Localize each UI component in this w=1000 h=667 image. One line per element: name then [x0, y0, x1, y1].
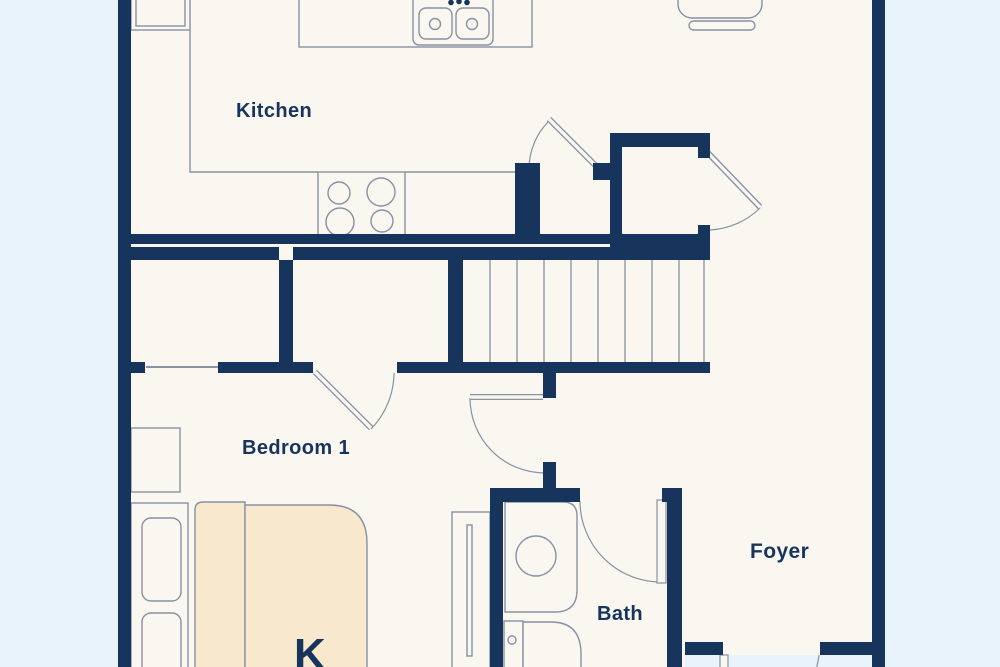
toilet-icon	[504, 621, 581, 667]
wall-door-jamb	[593, 163, 610, 180]
wardrobe-mirror-panel-icon	[452, 512, 490, 667]
wall-right-exterior	[872, 0, 885, 667]
armchair-icon	[678, 0, 762, 30]
wall-closet-jamb-bottom	[698, 225, 710, 260]
wall-closet-left	[610, 133, 622, 250]
bedroom1-label: Bedroom 1	[242, 437, 350, 460]
foyer-label: Foyer	[750, 540, 809, 564]
floor-plan-drawing	[0, 0, 1000, 667]
wall-left-exterior	[118, 0, 131, 667]
wall-closet-bottom	[610, 237, 710, 250]
double-basin-sink-icon	[413, 0, 493, 45]
wall-bedroom-top-a	[118, 362, 145, 373]
wall-bath-right	[667, 502, 682, 667]
wall-closet-jamb-top	[698, 147, 710, 158]
wall-foyer-bottom-right	[820, 642, 872, 655]
wall-rooms-top-left	[118, 247, 279, 260]
vanity-with-round-sink-icon	[505, 502, 577, 612]
wall-closet-divider	[279, 260, 293, 362]
bath-fixtures	[504, 502, 581, 667]
wall-kitchen-right	[515, 163, 540, 234]
wall-foyer-bottom-left	[685, 642, 723, 655]
wall-bath-left	[490, 502, 503, 667]
wall-stairwell-left	[448, 260, 463, 362]
bath-label: Bath	[597, 603, 643, 626]
wall-bath-top	[490, 488, 580, 502]
stove-four-burner-icon	[318, 172, 405, 238]
dresser-icon	[131, 428, 180, 492]
refrigerator-icon	[131, 0, 190, 30]
bed-headboard	[195, 502, 245, 667]
bed-size-label: K	[294, 630, 326, 667]
outside-notch	[685, 655, 872, 667]
wall-hall-stub-upper	[543, 373, 556, 398]
floor-plan-canvas: Kitchen Bedroom 1 Bath Foyer K	[0, 0, 1000, 667]
cabinet-with-drawers-icon	[131, 503, 188, 667]
wall-closet-top	[610, 133, 710, 147]
wall-bath-top-right	[662, 488, 682, 502]
kitchen-label: Kitchen	[236, 100, 312, 123]
king-bed-icon	[195, 502, 367, 667]
wall-bedroom-top-b	[218, 362, 313, 373]
wall-stairs-bottom-rail	[397, 362, 710, 373]
wall-hall-stub-lower	[543, 462, 556, 488]
